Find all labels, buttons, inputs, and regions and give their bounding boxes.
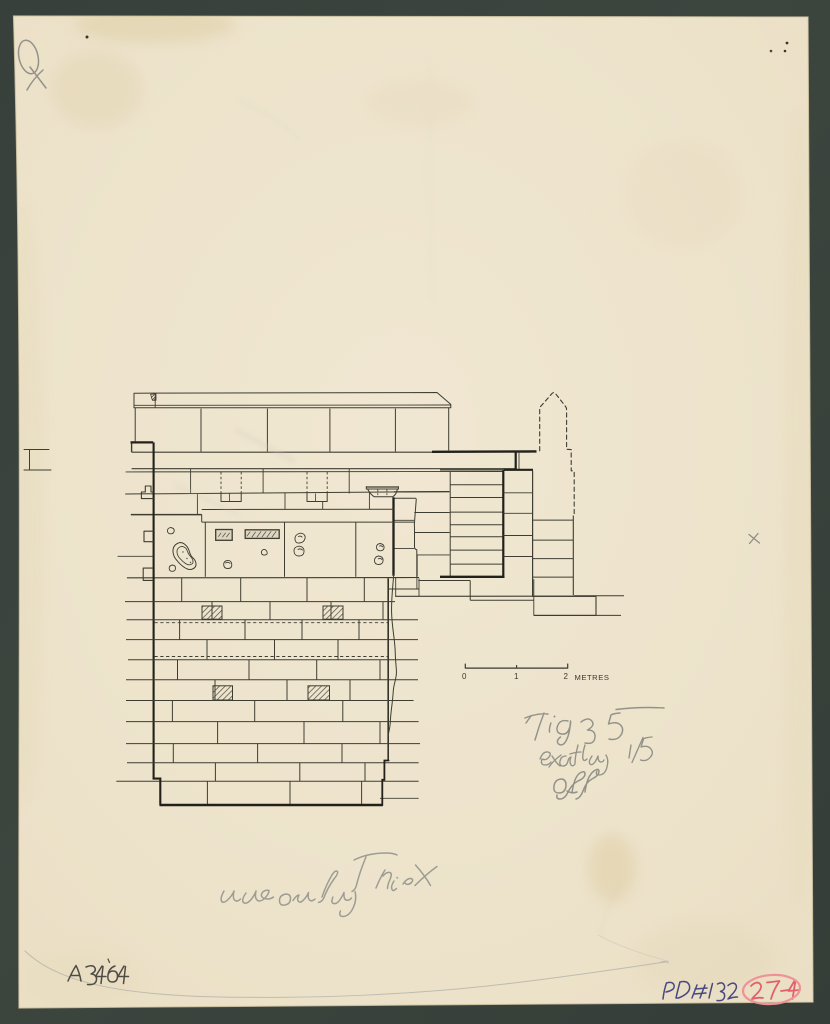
svg-text:METRES: METRES [575, 673, 610, 682]
svg-text:0: 0 [462, 672, 467, 681]
svg-text:1: 1 [514, 672, 519, 681]
svg-text:2: 2 [564, 672, 569, 681]
